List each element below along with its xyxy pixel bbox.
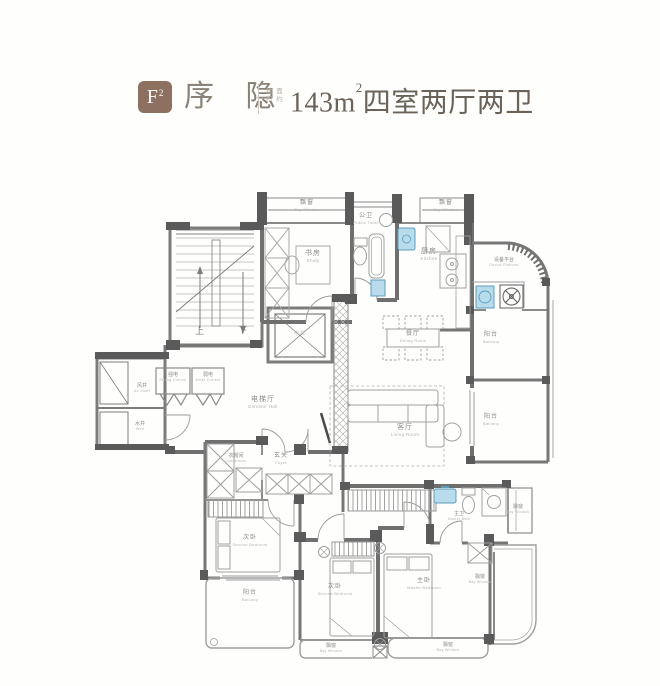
floorplan-page: F2 序 隐 建 面 积 约 143m2四室两厅两卫 (0, 0, 660, 686)
floorplan: 飘窗Bay Window书房Study公卫Public Toilet飘窗Bay … (0, 0, 660, 686)
floorplan-linework (0, 0, 660, 686)
